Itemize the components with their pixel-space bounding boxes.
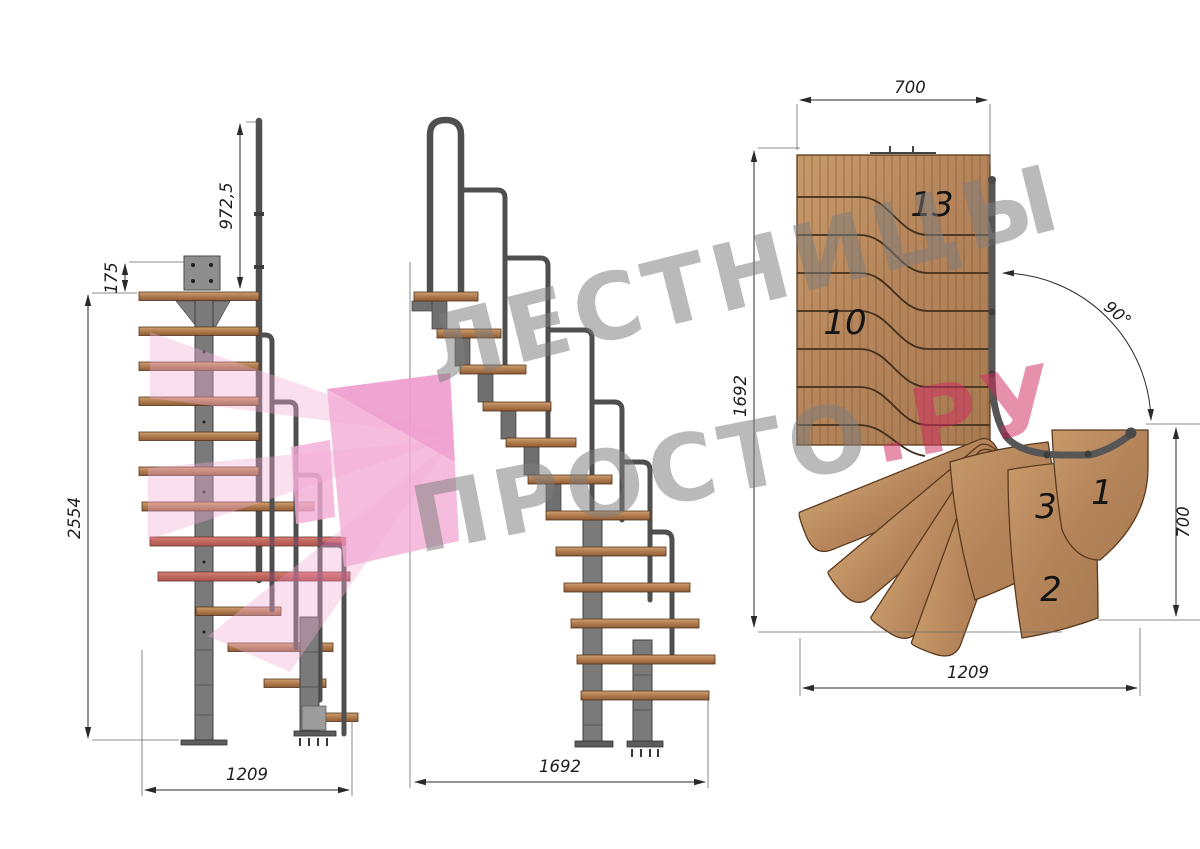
step-number-3: 3 xyxy=(1035,487,1057,527)
bolt xyxy=(203,561,206,564)
technical-drawing-page: 972,5 175 2554 1209 xyxy=(0,0,1200,849)
rail-end-knob xyxy=(1126,428,1137,439)
staircase-drawing: 972,5 175 2554 1209 xyxy=(0,0,1200,849)
step-board xyxy=(571,619,699,628)
handrail-loop-icon xyxy=(430,120,461,292)
bolt-hole xyxy=(191,279,195,283)
step-number-2: 2 xyxy=(1040,570,1062,610)
base-plate xyxy=(627,741,663,747)
dim-label-bottom-width: 1209 xyxy=(947,663,989,682)
step-board xyxy=(581,691,709,700)
rail-joint xyxy=(254,212,264,216)
dim-label-total-height: 2554 xyxy=(65,497,84,539)
anchor-bolts-icon xyxy=(300,738,327,746)
rail-joint xyxy=(254,265,264,269)
watermark-line2-gray: ПРОСТО xyxy=(403,380,882,574)
bolt xyxy=(203,421,206,424)
dim-label-rail-height: 972,5 xyxy=(217,182,236,229)
dim-label-top-width: 700 xyxy=(894,78,926,97)
anchor-bolts-icon xyxy=(632,749,658,757)
rail-joint xyxy=(1085,451,1092,458)
bolt-hole xyxy=(209,263,213,267)
step-board xyxy=(483,402,551,411)
bolt-hole xyxy=(209,279,213,283)
rail-joint xyxy=(989,309,996,316)
step-board xyxy=(139,432,259,441)
base-plate xyxy=(575,741,613,747)
step-board xyxy=(139,327,259,336)
step-number-1: 1 xyxy=(1091,473,1113,513)
dim-label-side-width: 1209 xyxy=(226,765,268,784)
mount-plate xyxy=(184,256,220,290)
step-board xyxy=(556,547,666,556)
bolt xyxy=(203,631,206,634)
step-highlight xyxy=(158,572,350,581)
step-board xyxy=(577,655,715,664)
dim-label-turn-angle: 90° xyxy=(1100,297,1135,330)
step-highlight xyxy=(150,537,346,546)
dim-label-front-width: 1692 xyxy=(539,757,581,776)
dim-label-top-offset: 175 xyxy=(102,262,121,294)
bolt-hole xyxy=(191,263,195,267)
watermark-logo-arm xyxy=(291,440,335,524)
dim-label-right-depth: 700 xyxy=(1174,506,1193,538)
step-board xyxy=(564,583,690,592)
step-board xyxy=(139,292,259,301)
base-plate xyxy=(294,731,336,736)
step-number-10: 10 xyxy=(823,303,866,343)
step-module xyxy=(501,411,516,439)
bottom-module xyxy=(302,706,326,730)
base-plate xyxy=(181,740,227,745)
wall-bracket-icon xyxy=(870,146,936,153)
